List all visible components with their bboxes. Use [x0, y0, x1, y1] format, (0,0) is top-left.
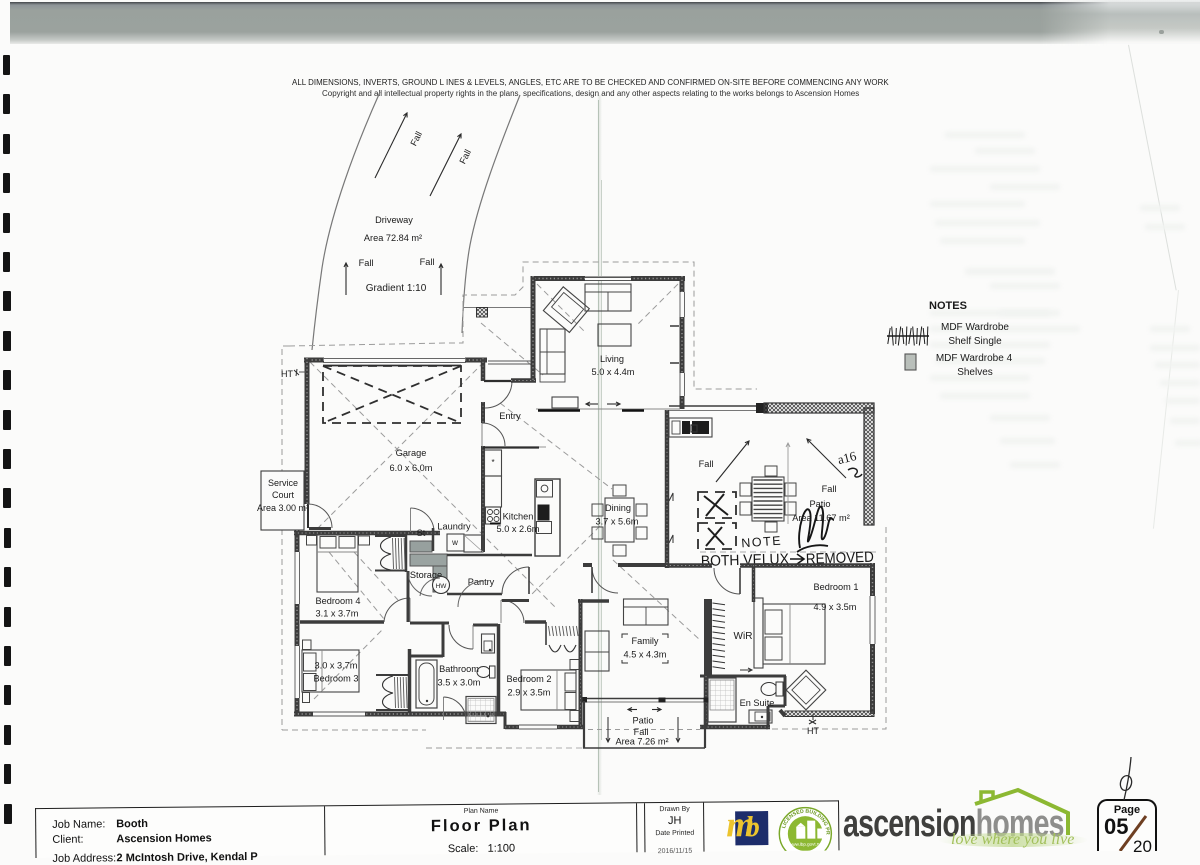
svg-text:Service: Service	[268, 478, 298, 488]
svg-text:HW: HW	[436, 583, 448, 590]
svg-text:Laundry: Laundry	[437, 522, 471, 532]
svg-text:w: w	[451, 538, 458, 547]
svg-text:4.9 x 3.5m: 4.9 x 3.5m	[814, 602, 857, 612]
svg-text:Garage: Garage	[396, 448, 427, 458]
svg-text:3.5 x 3.0m: 3.5 x 3.0m	[438, 678, 481, 688]
svg-text:3.7 x 5.6m: 3.7 x 5.6m	[596, 517, 639, 527]
svg-text:Driveway: Driveway	[375, 215, 413, 225]
svg-text:NOTE: NOTE	[741, 534, 783, 551]
svg-text:Patio: Patio	[633, 716, 654, 726]
svg-text:Fall: Fall	[699, 459, 714, 469]
svg-text:Fall: Fall	[409, 130, 425, 148]
svg-text:MDF Wardrobe: MDF Wardrobe	[941, 322, 1009, 333]
svg-text:5.0 x 2.6m: 5.0 x 2.6m	[497, 524, 540, 534]
svg-text:St: St	[417, 528, 426, 538]
svg-text:WiR: WiR	[734, 631, 753, 642]
svg-text:3.0 x 3.7m: 3.0 x 3.7m	[315, 661, 358, 671]
svg-text:Bathroom: Bathroom	[439, 664, 479, 674]
svg-text:*: *	[491, 458, 494, 467]
svg-text:Area 3.00 m²: Area 3.00 m²	[257, 503, 309, 513]
svg-text:Dining: Dining	[605, 503, 631, 513]
svg-text:Bedroom 4: Bedroom 4	[316, 596, 361, 606]
svg-text:5.0 x 4.4m: 5.0 x 4.4m	[592, 367, 635, 377]
svg-text:HT: HT	[281, 369, 293, 379]
svg-text:Bedroom 1: Bedroom 1	[814, 582, 859, 592]
svg-text:En Suite: En Suite	[740, 698, 775, 708]
svg-text:MDF Wardrobe 4: MDF Wardrobe 4	[936, 353, 1013, 364]
svg-text:HT: HT	[807, 726, 819, 736]
svg-text:4.5 x 4.3m: 4.5 x 4.3m	[624, 650, 667, 660]
svg-text:3.1 x 3.7m: 3.1 x 3.7m	[316, 609, 359, 619]
svg-text:Fall: Fall	[420, 257, 435, 267]
svg-text:Shelves: Shelves	[957, 367, 993, 378]
svg-text:Living: Living	[600, 354, 624, 364]
svg-text:Bedroom 2: Bedroom 2	[507, 674, 552, 684]
svg-text:Fall: Fall	[822, 484, 837, 494]
svg-text:Gradient 1:10: Gradient 1:10	[366, 283, 427, 294]
svg-text:Court: Court	[272, 490, 295, 500]
svg-text:NOTES: NOTES	[929, 300, 967, 312]
svg-text:6.0 x 6.0m: 6.0 x 6.0m	[390, 463, 433, 473]
svg-text:Entry: Entry	[499, 411, 521, 421]
svg-text:Shelf Single: Shelf Single	[948, 336, 1002, 347]
svg-text:Fall: Fall	[359, 258, 374, 268]
svg-text:Area 7.26 m²: Area 7.26 m²	[615, 737, 668, 747]
svg-text:Pantry: Pantry	[468, 577, 495, 587]
svg-text:www.lbp.govt.nz: www.lbp.govt.nz	[789, 842, 822, 847]
svg-text:Area 72.84 m²: Area 72.84 m²	[364, 233, 422, 243]
svg-text:Kitchen: Kitchen	[503, 512, 534, 522]
svg-text:a16: a16	[836, 448, 858, 467]
svg-text:2.9 x 3.5m: 2.9 x 3.5m	[508, 688, 551, 698]
svg-text:Family: Family	[631, 636, 658, 646]
svg-text:Bedroom 3: Bedroom 3	[314, 674, 359, 684]
svg-text:Fall: Fall	[458, 148, 474, 166]
svg-text:Fall: Fall	[634, 727, 649, 737]
